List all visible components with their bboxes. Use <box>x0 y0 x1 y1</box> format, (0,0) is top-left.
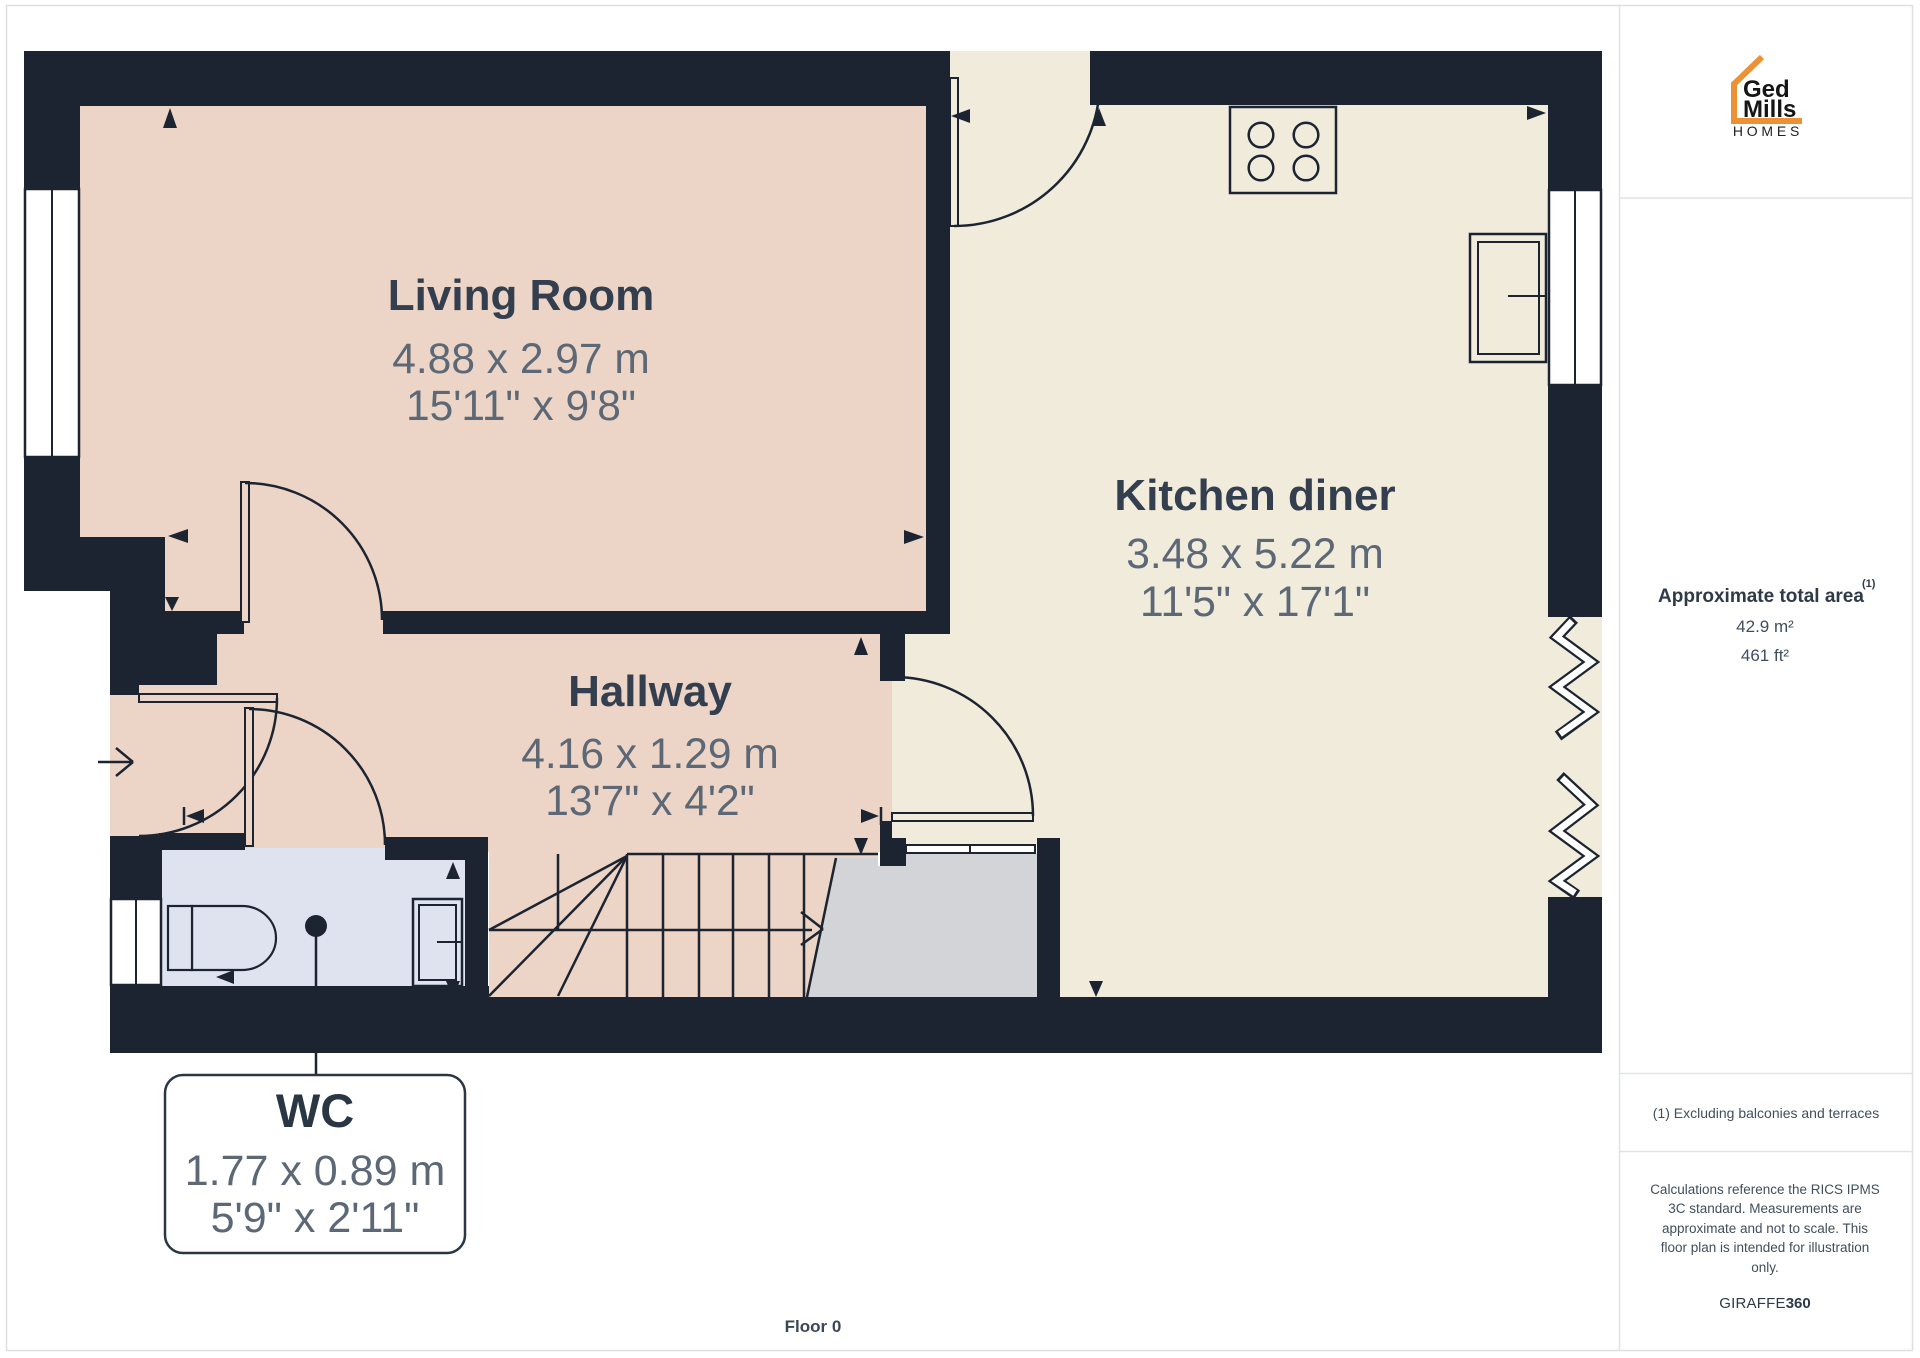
svg-text:(1) Excluding balconies and te: (1) Excluding balconies and terraces <box>1653 1105 1879 1121</box>
svg-text:4.88 x 2.97 m: 4.88 x 2.97 m <box>392 336 650 383</box>
svg-text:Living Room: Living Room <box>388 271 654 320</box>
svg-text:Approximate total area: Approximate total area <box>1658 586 1864 607</box>
svg-text:3C standard. Measurements are: 3C standard. Measurements are <box>1668 1201 1862 1216</box>
svg-text:Hallway: Hallway <box>568 667 732 716</box>
svg-text:461 ft²: 461 ft² <box>1741 646 1790 665</box>
svg-text:Floor 0: Floor 0 <box>785 1317 842 1336</box>
svg-text:13'7" x 4'2": 13'7" x 4'2" <box>545 778 754 825</box>
svg-text:Calculations reference the RIC: Calculations reference the RICS IPMS <box>1650 1182 1880 1197</box>
svg-text:15'11" x 9'8": 15'11" x 9'8" <box>406 383 636 430</box>
svg-text:(1): (1) <box>1862 578 1876 590</box>
svg-text:11'5" x 17'1": 11'5" x 17'1" <box>1140 579 1370 626</box>
svg-text:42.9 m²: 42.9 m² <box>1736 617 1794 636</box>
svg-text:Mills: Mills <box>1743 96 1796 123</box>
svg-text:Kitchen diner: Kitchen diner <box>1114 471 1395 520</box>
svg-text:WC: WC <box>276 1084 354 1137</box>
svg-text:3.48 x 5.22 m: 3.48 x 5.22 m <box>1126 531 1384 578</box>
svg-text:approximate and not to scale.: approximate and not to scale. This <box>1662 1221 1868 1236</box>
svg-text:5'9" x 2'11": 5'9" x 2'11" <box>211 1194 420 1242</box>
svg-text:1.77 x 0.89 m: 1.77 x 0.89 m <box>185 1147 446 1195</box>
svg-text:4.16 x 1.29 m: 4.16 x 1.29 m <box>521 731 779 778</box>
svg-text:only.: only. <box>1751 1260 1779 1275</box>
svg-text:floor plan is intended for ill: floor plan is intended for illustration <box>1661 1240 1870 1255</box>
svg-text:GIRAFFE360: GIRAFFE360 <box>1719 1295 1810 1312</box>
svg-text:HOMES: HOMES <box>1733 123 1803 139</box>
